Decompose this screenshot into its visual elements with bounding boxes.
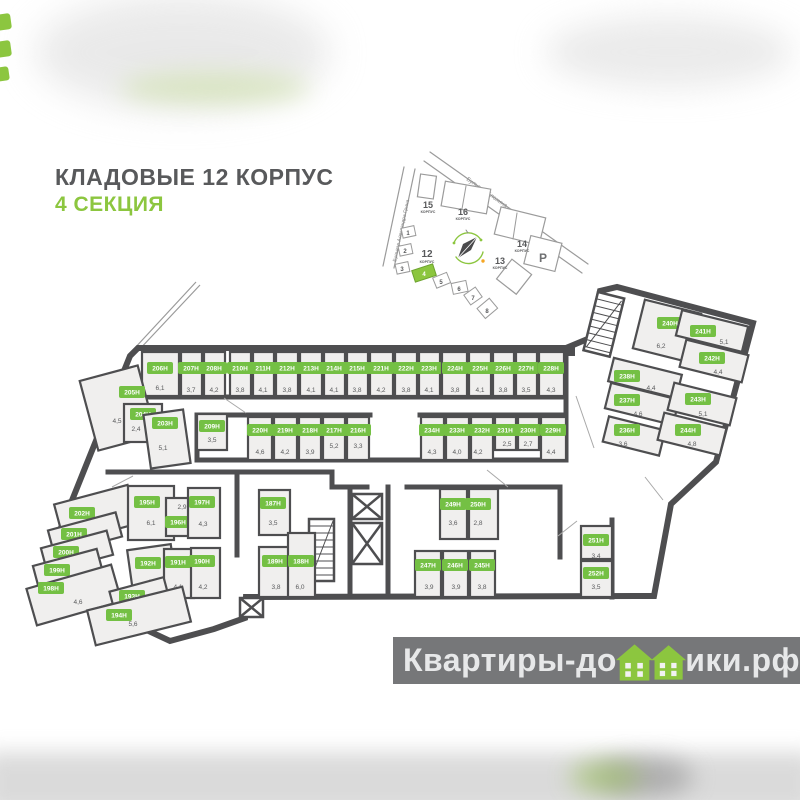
map-label-14: 14 — [517, 239, 527, 249]
room-area-label: 3,8 — [401, 387, 410, 394]
storage-room-219Н: 219Н4,2 — [272, 417, 298, 460]
room-number-label: 222Н — [398, 365, 414, 372]
storage-room-245Н: 245Н3,8 — [469, 551, 495, 597]
storage-room-225Н: 225Н4,1 — [467, 352, 493, 396]
room-number-label: 224Н — [447, 365, 463, 372]
room-number-label: 209Н — [204, 423, 220, 430]
room-area-label: 4,6 — [633, 411, 642, 418]
room-area-label: 4,3 — [427, 449, 436, 456]
watermark-text-before: Квартиры-до — [403, 642, 617, 679]
storage-room-217Н: 217Н5,2 — [321, 417, 347, 460]
room-area-label: 4,1 — [329, 387, 338, 394]
room-area-label: 4,3 — [546, 387, 555, 394]
room-area-label: 2,8 — [473, 520, 482, 527]
storage-room-226Н: 226Н3,8 — [490, 352, 516, 396]
room-number-label: 218Н — [302, 427, 318, 434]
storage-room-197Н: 197Н4,3 — [188, 488, 220, 538]
room-area-label: 3,8 — [282, 387, 291, 394]
room-area-label: 6,2 — [656, 343, 665, 350]
room-number-label: 243Н — [690, 396, 706, 403]
watermark-text-after: ики.рф — [685, 642, 800, 679]
map-building-15-shape — [417, 174, 436, 199]
room-area-label: 3,3 — [353, 443, 362, 450]
storage-room-246Н: 246Н3,9 — [442, 551, 468, 597]
room-area-label: 4,2 — [280, 449, 289, 456]
room-number-label: 250Н — [470, 501, 486, 508]
room-area-label: 2,9 — [177, 504, 186, 511]
room-area-label: 4,8 — [687, 441, 696, 448]
room-number-label: 203Н — [157, 420, 173, 427]
room-area-label: 4,1 — [475, 387, 484, 394]
room-area-label: 4,6 — [255, 449, 264, 456]
room-number-label: 187Н — [265, 500, 281, 507]
room-number-label: 233Н — [449, 427, 465, 434]
room-number-label: 249Н — [445, 501, 461, 508]
room-area-label: 5,1 — [719, 339, 728, 346]
room-number-label: 188Н — [293, 558, 309, 565]
room-number-label: 195Н — [139, 499, 155, 506]
room-number-label: 207Н — [183, 365, 199, 372]
room-area-label: 2,7 — [523, 441, 532, 448]
wall-joint — [564, 345, 575, 356]
map-label-16-korpus: КОРПУС — [456, 217, 471, 221]
storage-room-216Н: 216Н3,3 — [345, 417, 371, 460]
storage-room-211Н: 211Н4,1 — [250, 352, 276, 396]
storage-room-213Н: 213Н4,1 — [298, 352, 324, 396]
storage-room-233Н: 233Н4,0 — [444, 417, 470, 460]
map-label-15-korpus: КОРПУС — [421, 210, 436, 214]
map-label-16: 16 — [458, 207, 468, 217]
room-number-label: 197Н — [194, 499, 210, 506]
room-area-label: 5,6 — [128, 621, 137, 628]
room-number-label: 231Н — [497, 427, 513, 434]
room-number-label: 215Н — [349, 365, 365, 372]
map-label-14-korpus: КОРПУС — [515, 249, 530, 253]
room-area-label: 3,5 — [591, 584, 600, 591]
room-number-label: 232Н — [474, 427, 490, 434]
room-area-label: 5,1 — [158, 445, 167, 452]
room-area-label: 3,8 — [477, 584, 486, 591]
room-number-label: 211Н — [255, 365, 270, 372]
house-icon — [616, 641, 653, 683]
room-number-label: 226Н — [495, 365, 511, 372]
room-floor — [323, 417, 345, 460]
room-number-label: 202Н — [74, 510, 90, 517]
room-number-label: 223Н — [421, 365, 437, 372]
room-number-label: 251Н — [588, 537, 604, 544]
room-number-label: 210Н — [232, 365, 248, 372]
room-number-label: 217Н — [326, 427, 342, 434]
storage-room-220Н: 220Н4,6 — [247, 417, 273, 460]
room-area-label: 3,5 — [521, 387, 530, 394]
room-area-label: 3,6 — [448, 520, 457, 527]
storage-room-227Н: 227Н3,5 — [513, 352, 539, 396]
room-area-label: 5,2 — [329, 443, 338, 450]
storage-room-215Н: 215Н3,8 — [344, 352, 370, 396]
room-number-label: 189Н — [267, 558, 283, 565]
room-number-label: 241Н — [695, 328, 711, 335]
room-area-label: 3,8 — [235, 387, 244, 394]
room-floor — [347, 417, 369, 460]
room-number-label: 190Н — [194, 558, 210, 565]
room-number-label: 220Н — [252, 427, 268, 434]
room-area-label: 3,8 — [450, 387, 459, 394]
storage-room-221Н: 221Н4,2 — [368, 352, 394, 396]
storage-room-190Н: 190Н4,2 — [189, 548, 220, 598]
room-area-label: 4,2 — [473, 449, 482, 456]
room-number-label: 234Н — [424, 427, 440, 434]
storage-room-188Н: 188Н6,0 — [288, 533, 315, 597]
room-number-label: 219Н — [277, 427, 293, 434]
room-area-label: 3,8 — [498, 387, 507, 394]
room-number-label: 240Н — [662, 320, 678, 327]
storage-room-231Н: 231Н2,5 — [492, 417, 518, 450]
storage-room-228Н: 228Н4,3 — [538, 352, 564, 396]
room-area-label: 3,9 — [305, 449, 314, 456]
room-area-label: 2,5 — [502, 441, 511, 448]
room-area-label: 3,9 — [451, 584, 460, 591]
storage-room-212Н: 212Н3,8 — [274, 352, 300, 396]
room-number-label: 206Н — [152, 365, 168, 372]
room-number-label: 230Н — [520, 427, 536, 434]
room-area-label: 6,0 — [295, 584, 304, 591]
room-number-label: 216Н — [350, 427, 366, 434]
room-area-label: 4,1 — [306, 387, 315, 394]
room-area-label: 3,9 — [424, 584, 433, 591]
room-area-label: 4,3 — [198, 521, 207, 528]
map-label-13-korpus: КОРПУС — [493, 266, 508, 270]
room-area-label: 4,1 — [258, 387, 267, 394]
storage-room-229Н: 229Н4,4 — [540, 417, 566, 460]
room-area-label: 4,2 — [209, 387, 218, 394]
room-floor — [469, 489, 498, 539]
room-area-label: 4,5 — [112, 418, 121, 425]
room-area-label: 6,1 — [155, 385, 164, 392]
storage-room-210Н: 210Н3,8 — [227, 352, 253, 396]
room-floor — [259, 490, 290, 535]
storage-room-251Н: 251Н3,4 — [581, 526, 612, 560]
room-number-label: 194Н — [111, 612, 127, 619]
storage-room-249Н: 249Н3,6 — [440, 489, 467, 539]
site-map: Бульвар Блохина Бульвар Александра Грина… — [383, 152, 588, 319]
ramp-lines — [133, 282, 200, 352]
room-number-label: 221Н — [373, 365, 389, 372]
room-number-label: 191Н — [170, 559, 186, 566]
room-area-label: 2,4 — [131, 426, 140, 433]
storage-room-207Н: 207Н3,7 — [178, 352, 204, 396]
room-number-label: 228Н — [543, 365, 559, 372]
room-floor — [188, 488, 220, 538]
storage-room-230Н: 230Н2,7 — [515, 417, 541, 450]
room-area-label: 4,0 — [452, 449, 461, 456]
storage-room-189Н: 189Н3,8 — [259, 547, 290, 597]
room-number-label: 242Н — [704, 355, 720, 362]
room-number-label: 208Н — [206, 365, 222, 372]
room-number-label: 196Н — [170, 519, 186, 526]
storage-room-232Н: 232Н4,2 — [469, 417, 495, 460]
room-area-label: 4,4 — [713, 369, 722, 376]
room-number-label: 229Н — [545, 427, 561, 434]
room-number-label: 225Н — [472, 365, 488, 372]
watermark-bar: Квартиры-до ики.рф — [393, 637, 800, 684]
storage-room-203Н: 203Н5,1 — [143, 409, 190, 468]
map-label-12: 12 — [421, 249, 433, 260]
room-area-label: 3,4 — [591, 553, 600, 560]
room-number-label: 238Н — [619, 373, 635, 380]
room-area-label: 4,4 — [546, 449, 555, 456]
storage-room-247Н: 247Н3,9 — [415, 551, 441, 597]
room-floor — [440, 489, 467, 539]
room-area-label: 4,6 — [73, 599, 82, 606]
storage-room-206Н: 206Н6,1 — [142, 352, 179, 396]
storage-room-224Н: 224Н3,8 — [442, 352, 468, 396]
room-number-label: 205Н — [124, 389, 140, 396]
room-number-label: 198Н — [43, 585, 59, 592]
storage-room-223Н: 223Н4,1 — [416, 352, 442, 396]
storage-room-218Н: 218Н3,9 — [297, 417, 323, 460]
storage-room-222Н: 222Н3,8 — [393, 352, 419, 396]
storage-room-208Н: 208Н4,2 — [201, 352, 227, 396]
storage-room-214Н: 214Н4,1 — [321, 352, 347, 396]
room-number-label: 252Н — [588, 570, 604, 577]
room-number-label: 244Н — [680, 427, 696, 434]
room-area-label: 3,8 — [271, 584, 280, 591]
compass-icon — [453, 230, 485, 264]
room-area-label: 5,1 — [698, 411, 707, 418]
room-area-label: 6,1 — [146, 520, 155, 527]
map-label-13: 13 — [495, 256, 505, 266]
room-area-label: 4,1 — [424, 387, 433, 394]
room-area-label: 4,2 — [376, 387, 385, 394]
storage-room-234Н: 234Н4,3 — [419, 417, 445, 460]
map-parking-label: Р — [539, 251, 547, 265]
room-area-label: 3,8 — [352, 387, 361, 394]
room-number-label: 213Н — [303, 365, 319, 372]
room-number-label: 247Н — [420, 562, 436, 569]
room-area-label: 3,5 — [207, 437, 216, 444]
floorplan-page: { "title": {"line1": "КЛАДОВЫЕ 12 КОРПУС… — [0, 0, 800, 800]
room-number-label: 245Н — [474, 562, 490, 569]
room-number-label: 227Н — [518, 365, 534, 372]
room-area-label: 3,6 — [618, 441, 627, 448]
storage-room-250Н: 250Н2,8 — [465, 489, 498, 539]
storage-room-209Н: 209Н3,5 — [197, 414, 227, 450]
storage-room-187Н: 187Н3,5 — [259, 490, 290, 535]
room-area-label: 4,2 — [198, 584, 207, 591]
room-number-label: 246Н — [447, 562, 463, 569]
map-label-15: 15 — [423, 200, 433, 210]
room-number-label: 192Н — [140, 560, 156, 567]
room-number-label: 236Н — [619, 427, 635, 434]
room-number-label: 212Н — [279, 365, 295, 372]
house-icon — [651, 642, 686, 682]
storage-room-252Н: 252Н3,5 — [581, 561, 612, 597]
room-number-label: 214Н — [326, 365, 342, 372]
room-number-label: 237Н — [619, 397, 635, 404]
room-area-label: 3,5 — [268, 520, 277, 527]
room-number-label: 199Н — [49, 567, 65, 574]
room-area-label: 3,7 — [186, 387, 195, 394]
